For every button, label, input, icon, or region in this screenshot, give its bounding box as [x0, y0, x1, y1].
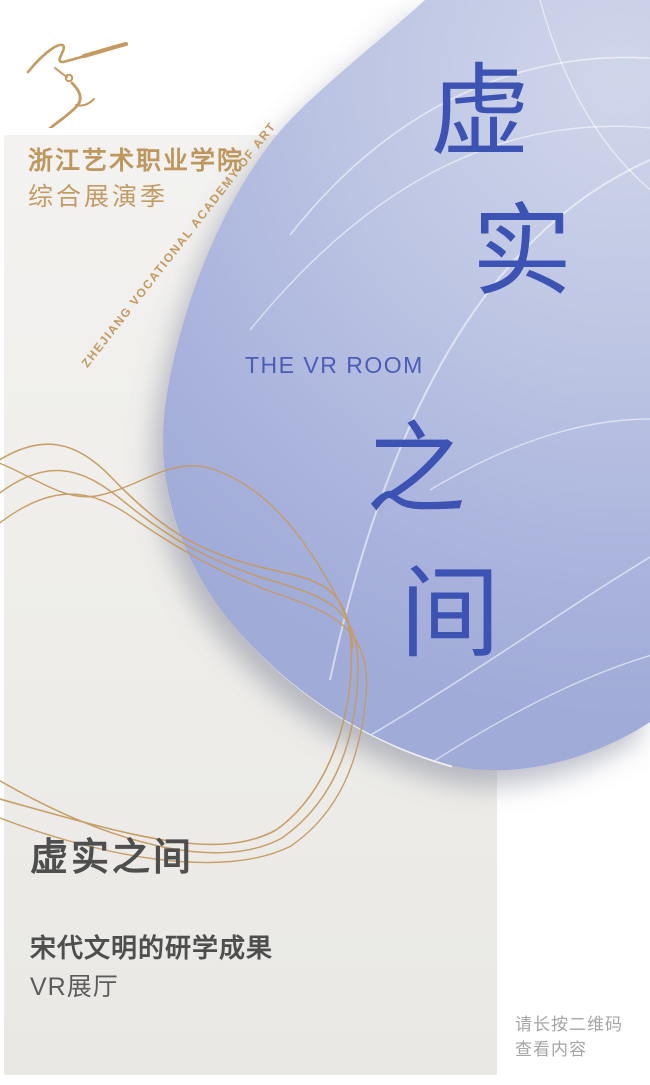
hero-char-xu: 虚 — [430, 62, 530, 162]
exhibition-title: 虚实之间 — [30, 826, 194, 881]
qr-hint-line-1: 请长按二维码 — [515, 1012, 623, 1037]
exhibition-venue: VR展厅 — [30, 967, 119, 1003]
dancer-crane-logo — [12, 16, 138, 128]
academy-name: 浙江艺术职业学院 — [28, 141, 244, 177]
season-title: 综合展演季 — [28, 177, 168, 213]
hero-char-shi: 实 — [472, 202, 572, 302]
poster: 浙江艺术职业学院 综合展演季 ZHEJIANG VOCATIONAL ACADE… — [0, 0, 650, 1085]
hero-subtitle-english: THE VR ROOM — [245, 352, 424, 379]
qr-code-hint: 请长按二维码 查看内容 — [515, 1012, 623, 1062]
hero-char-jian: 间 — [400, 564, 500, 664]
qr-hint-line-2: 查看内容 — [515, 1037, 623, 1062]
exhibition-subtitle: 宋代文明的研学成果 — [30, 928, 273, 965]
hero-char-zhi: 之 — [366, 420, 466, 520]
